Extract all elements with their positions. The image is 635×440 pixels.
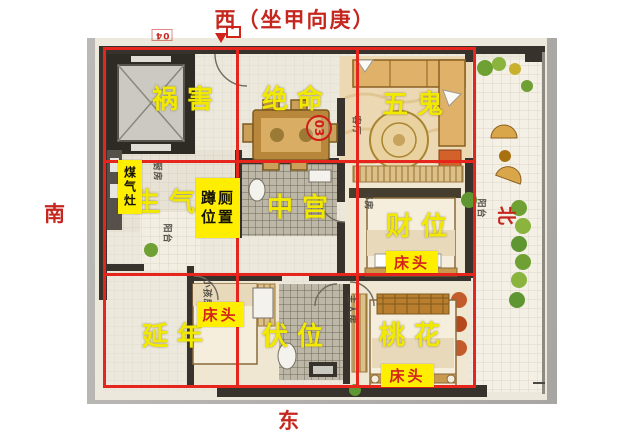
sector-shengqi: 生气 bbox=[134, 190, 204, 216]
grid-hline-2 bbox=[103, 160, 476, 163]
room-label-study: 书房 bbox=[363, 190, 376, 210]
sector-jueming: 绝命 bbox=[262, 87, 332, 113]
sector-wugui: 五鬼 bbox=[382, 92, 452, 118]
grid-vline-1 bbox=[103, 47, 106, 388]
sector-huohai: 祸害 bbox=[152, 87, 222, 113]
sector-yannian: 延年 bbox=[142, 324, 212, 350]
sector-taohua: 桃花 bbox=[379, 323, 449, 349]
unit-badge-03: 03 bbox=[306, 115, 332, 141]
grid-hline-1 bbox=[103, 47, 476, 50]
direction-west-title: 西（坐甲向庚） bbox=[170, 4, 420, 34]
tag-bed-head-mid: 床头 bbox=[386, 251, 438, 273]
tag-bed-head-master: 床头 bbox=[381, 364, 434, 387]
grid-vline-4 bbox=[473, 47, 476, 388]
room-label-kitchen-balcony: 阳台 bbox=[162, 223, 175, 243]
direction-south: 南 bbox=[44, 198, 65, 228]
direction-east: 东 bbox=[278, 405, 299, 435]
tag-squat-line1: 蹲厕 bbox=[201, 189, 235, 209]
room-label-kitchen: 厨房 bbox=[152, 161, 165, 181]
room-label-balcony: 阳台 bbox=[476, 198, 489, 218]
grid-hline-3 bbox=[103, 273, 476, 276]
tag-squat-line2: 位置 bbox=[201, 208, 235, 228]
sector-zhonggong: 中宫 bbox=[267, 195, 337, 221]
sector-fuwei: 伏位 bbox=[262, 324, 332, 350]
tag-bed-head-kids: 床头 bbox=[197, 302, 244, 327]
tag-gas-stove: 煤气灶 bbox=[118, 160, 142, 214]
direction-north: 北 bbox=[494, 206, 521, 225]
sector-caiwei: 财位 bbox=[386, 214, 456, 240]
grid-vline-3 bbox=[356, 47, 359, 388]
tag-squat-toilet: 蹲厕 位置 bbox=[196, 178, 240, 238]
